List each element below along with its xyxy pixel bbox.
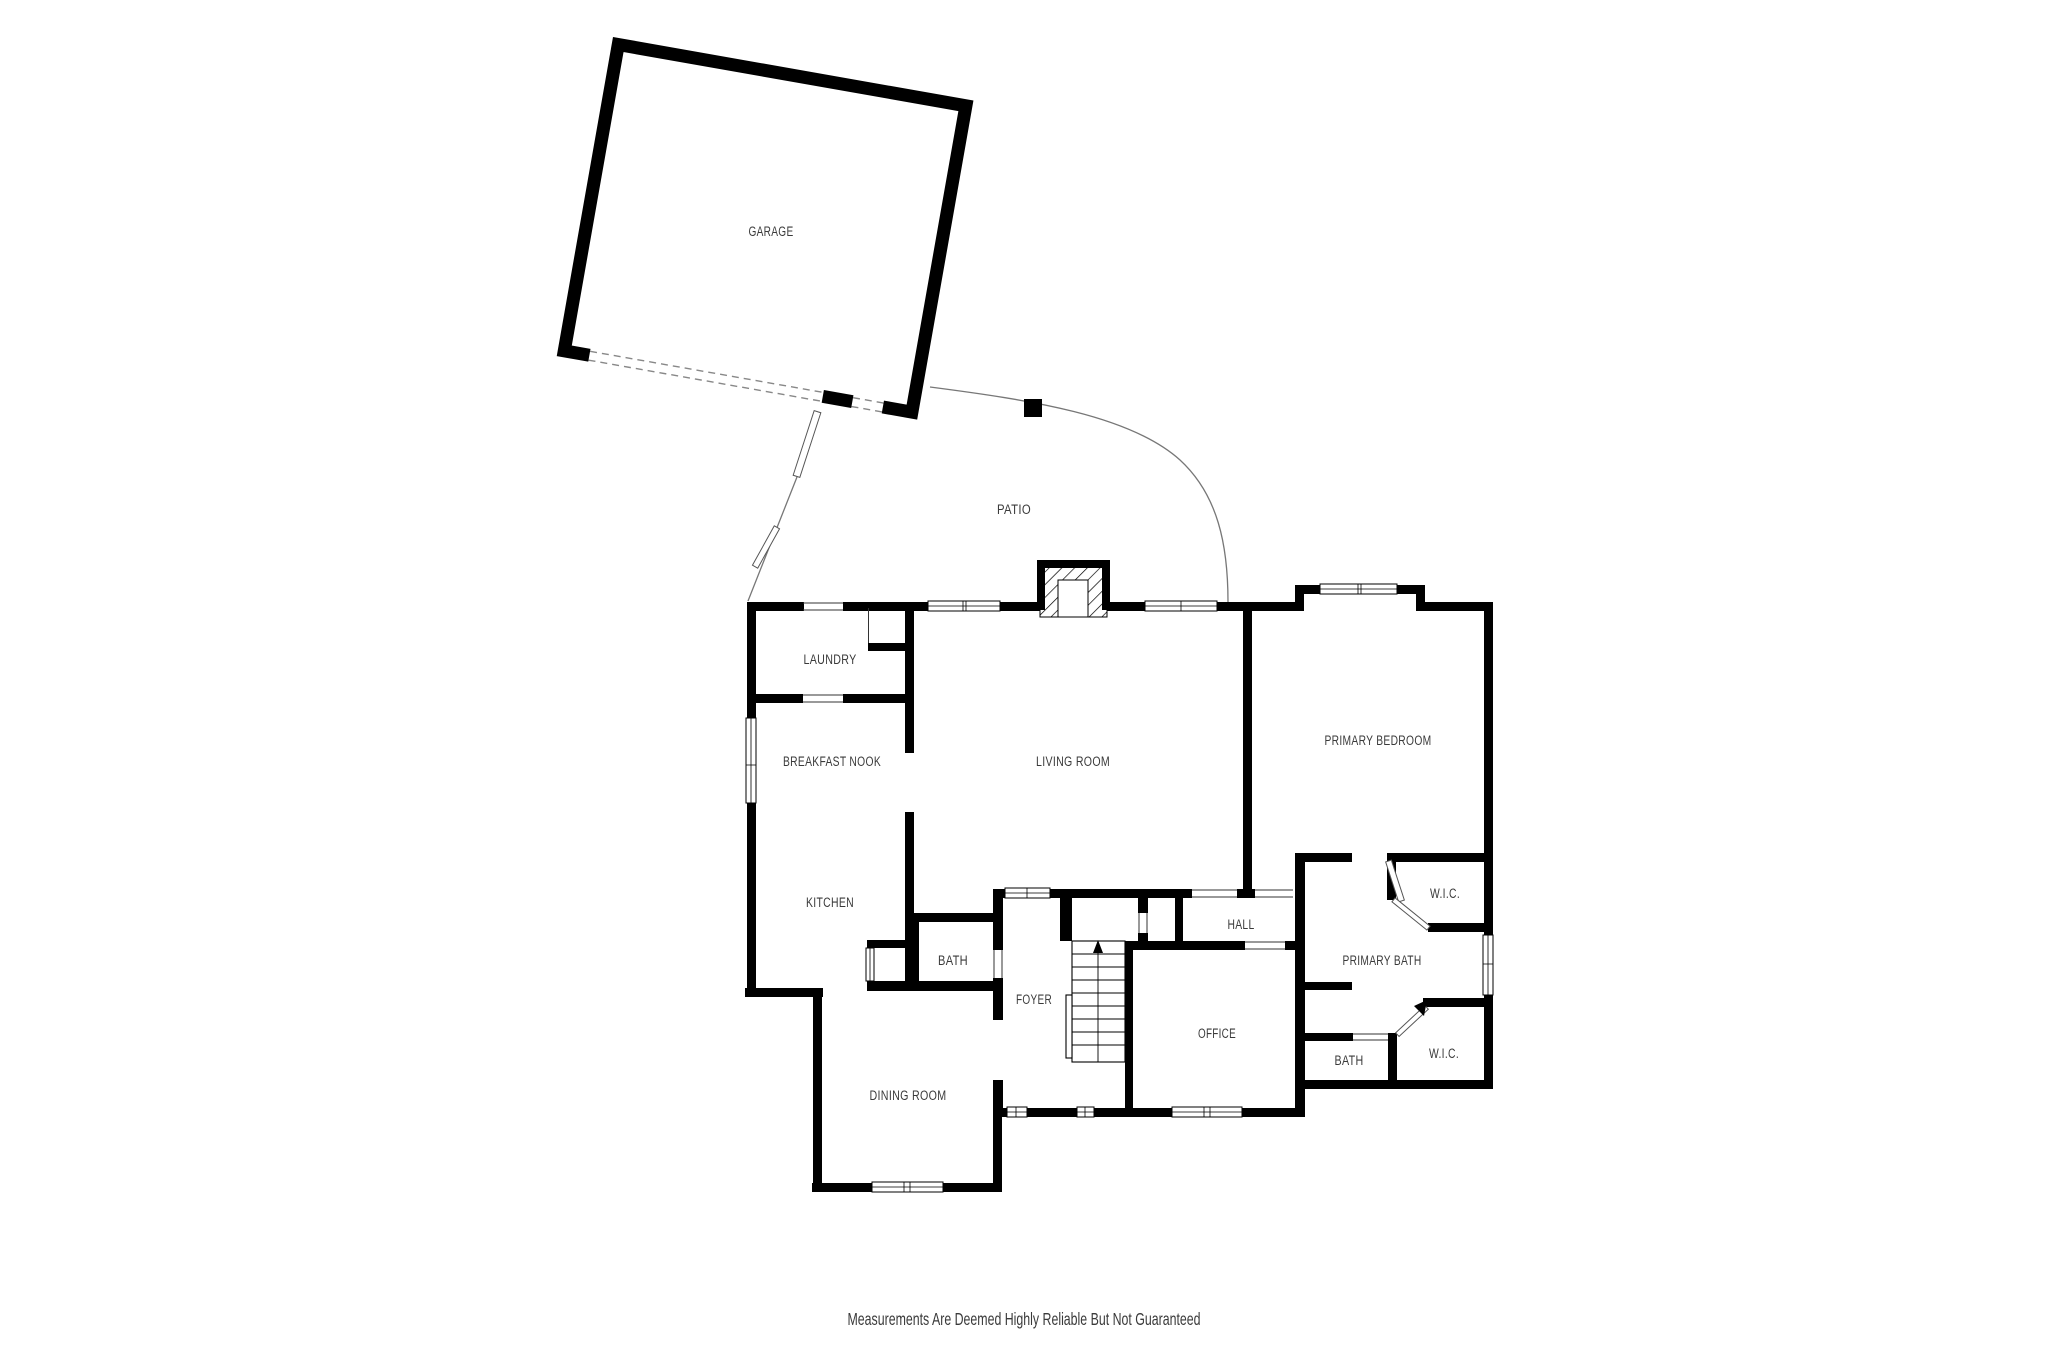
- room-label-hall: HALL: [1228, 917, 1255, 932]
- room-label-living-room: LIVING ROOM: [1036, 754, 1110, 769]
- window-muntins: [746, 584, 1493, 1192]
- room-label-breakfast-nook: BREAKFAST NOOK: [783, 754, 881, 769]
- stair-rail: [1066, 995, 1072, 1058]
- staircase: [1066, 940, 1125, 1062]
- wic-upper-door-leaf: [1392, 898, 1430, 930]
- room-label-office: OFFICE: [1198, 1026, 1236, 1041]
- house-walls: [745, 585, 1493, 1192]
- room-label-garage: GARAGE: [749, 224, 794, 239]
- room-label-wic-lower: W.I.C.: [1429, 1046, 1459, 1061]
- room-label-wic-upper: W.I.C.: [1430, 886, 1460, 901]
- room-label-laundry: LAUNDRY: [804, 652, 857, 667]
- floor-plan: GARAGE PATIO LAUNDRY BREAKFAST NOOK LIVI…: [0, 0, 2048, 1365]
- garage-mandoor-leaf: [793, 411, 821, 478]
- floor-plan-canvas: GARAGE PATIO LAUNDRY BREAKFAST NOOK LIVI…: [0, 0, 2048, 1365]
- room-label-bath-lower: BATH: [1335, 1053, 1364, 1068]
- site-elements: [748, 387, 1228, 602]
- room-label-patio: PATIO: [997, 502, 1031, 517]
- room-label-primary-bedroom: PRIMARY BEDROOM: [1325, 733, 1432, 748]
- fireplace-firebox: [1058, 580, 1088, 617]
- windows: [746, 584, 1493, 1192]
- room-label-primary-bath: PRIMARY BATH: [1343, 953, 1422, 968]
- stair-outline: [1072, 941, 1125, 1062]
- fireplace: [1037, 560, 1110, 617]
- gate-leaf: [752, 526, 779, 568]
- room-label-bath: BATH: [938, 953, 968, 968]
- room-label-kitchen: KITCHEN: [806, 895, 854, 910]
- patio-post: [1024, 399, 1042, 417]
- room-label-foyer: FOYER: [1016, 992, 1052, 1007]
- room-label-dining-room: DINING ROOM: [870, 1088, 947, 1103]
- disclaimer-text: Measurements Are Deemed Highly Reliable …: [848, 1309, 1201, 1329]
